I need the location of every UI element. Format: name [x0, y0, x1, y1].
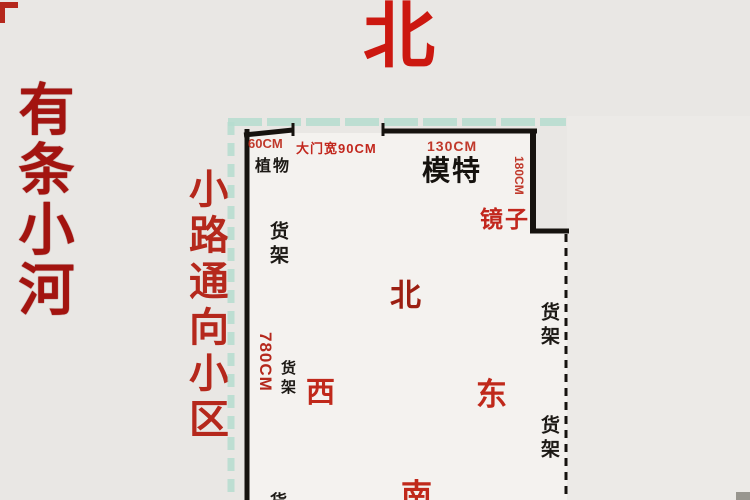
- floor-plan-drawing: [0, 0, 750, 500]
- shelf-label-west-lower: 货架: [277, 360, 298, 398]
- mirror-height-dim: 180CM: [512, 156, 526, 195]
- shelf-label-west-upper: 货架: [264, 221, 291, 269]
- outside-east-area: [567, 116, 750, 500]
- direction-south-label: 南: [401, 470, 432, 500]
- room-interior: [247, 133, 533, 500]
- west-wall-length-dim: 780CM: [255, 332, 275, 392]
- shelf-label-east-upper: 货架: [535, 302, 562, 350]
- direction-east-label: 东: [476, 369, 507, 414]
- plant-width-dim: 60CM: [248, 136, 283, 151]
- floor-plan-image: 有条小河 小路通向小区 北 60CM 植物 大门宽90CM 130CM 模特 1…: [0, 0, 750, 500]
- shelf-label-east-lower: 货架: [535, 415, 562, 463]
- direction-north-label: 北: [390, 270, 421, 315]
- plant-label: 植物: [255, 152, 291, 176]
- mannequin-label: 模特: [422, 149, 482, 189]
- direction-west-label: 西: [306, 369, 335, 411]
- shelf-label-west-bottom-cropped: 货: [270, 487, 287, 500]
- door-width-dim: 大门宽90CM: [296, 138, 377, 157]
- mirror-label: 镜子: [480, 200, 530, 234]
- watermark-remnant: [736, 492, 750, 500]
